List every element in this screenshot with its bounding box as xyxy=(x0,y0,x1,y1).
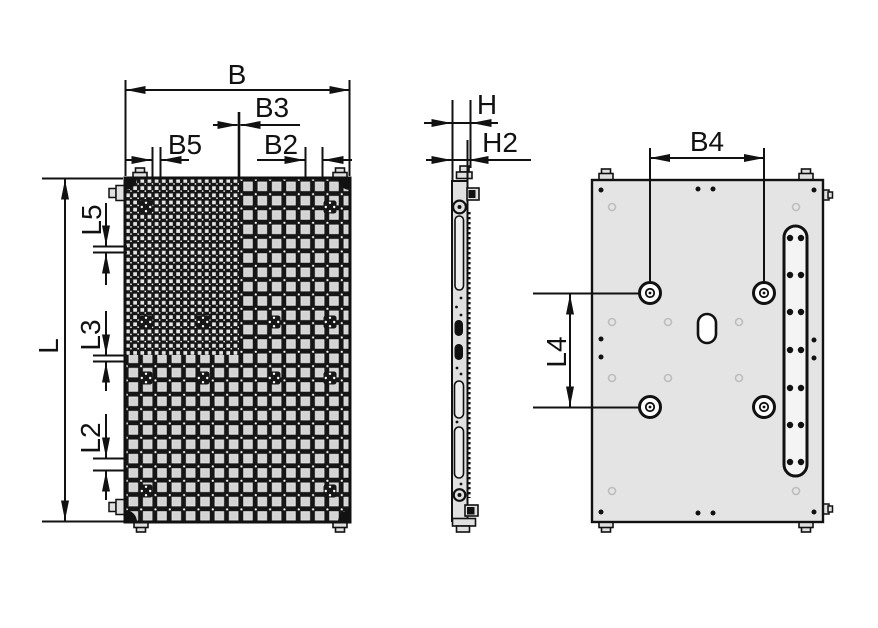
suction-point xyxy=(324,316,337,329)
label-B2: B2 xyxy=(264,129,298,160)
label-H2: H2 xyxy=(482,127,518,158)
back-right-slot xyxy=(784,226,807,476)
suction-point xyxy=(140,316,153,329)
suction-point xyxy=(197,316,210,329)
back-right-fitting xyxy=(823,504,833,514)
suction-point xyxy=(140,201,153,214)
side-cross-hole-center xyxy=(458,205,462,209)
suction-point xyxy=(268,316,281,329)
front-left-fitting xyxy=(109,500,125,515)
back-view xyxy=(592,169,833,532)
side-right-tab xyxy=(467,188,479,200)
drawing-svg: B B3 B5 B2 H H2 B4 L L5 L3 L2 L4 xyxy=(0,0,878,628)
side-view xyxy=(452,166,479,532)
suction-point xyxy=(324,372,337,385)
back-center-slot xyxy=(698,314,716,343)
back-right-fitting xyxy=(823,190,833,200)
front-view xyxy=(109,168,350,532)
suction-point xyxy=(140,372,153,385)
suction-point xyxy=(324,485,337,498)
back-top-screw-tab xyxy=(599,169,613,180)
suction-point xyxy=(324,201,337,214)
front-left-fitting xyxy=(109,186,125,201)
label-H: H xyxy=(477,89,497,120)
suction-point xyxy=(197,372,210,385)
mounting-hole xyxy=(754,397,775,418)
label-L2: L2 xyxy=(75,422,106,453)
side-cross-hole-center xyxy=(458,493,462,497)
back-top-screw-tab xyxy=(799,169,813,180)
label-L4: L4 xyxy=(541,336,572,367)
label-L: L xyxy=(33,338,64,354)
label-L5: L5 xyxy=(76,204,107,235)
label-B3: B3 xyxy=(255,92,289,123)
label-B5: B5 xyxy=(168,129,202,160)
suction-point xyxy=(268,372,281,385)
technical-drawing-canvas: B B3 B5 B2 H H2 B4 L L5 L3 L2 L4 xyxy=(0,0,878,628)
mounting-hole xyxy=(640,397,661,418)
mounting-hole xyxy=(754,283,775,304)
dim-B xyxy=(126,80,350,176)
label-L3: L3 xyxy=(75,319,106,350)
label-B: B xyxy=(228,59,247,90)
side-inner-slots xyxy=(455,216,464,485)
label-B4: B4 xyxy=(690,126,724,157)
mounting-hole xyxy=(640,283,661,304)
suction-point xyxy=(140,485,153,498)
